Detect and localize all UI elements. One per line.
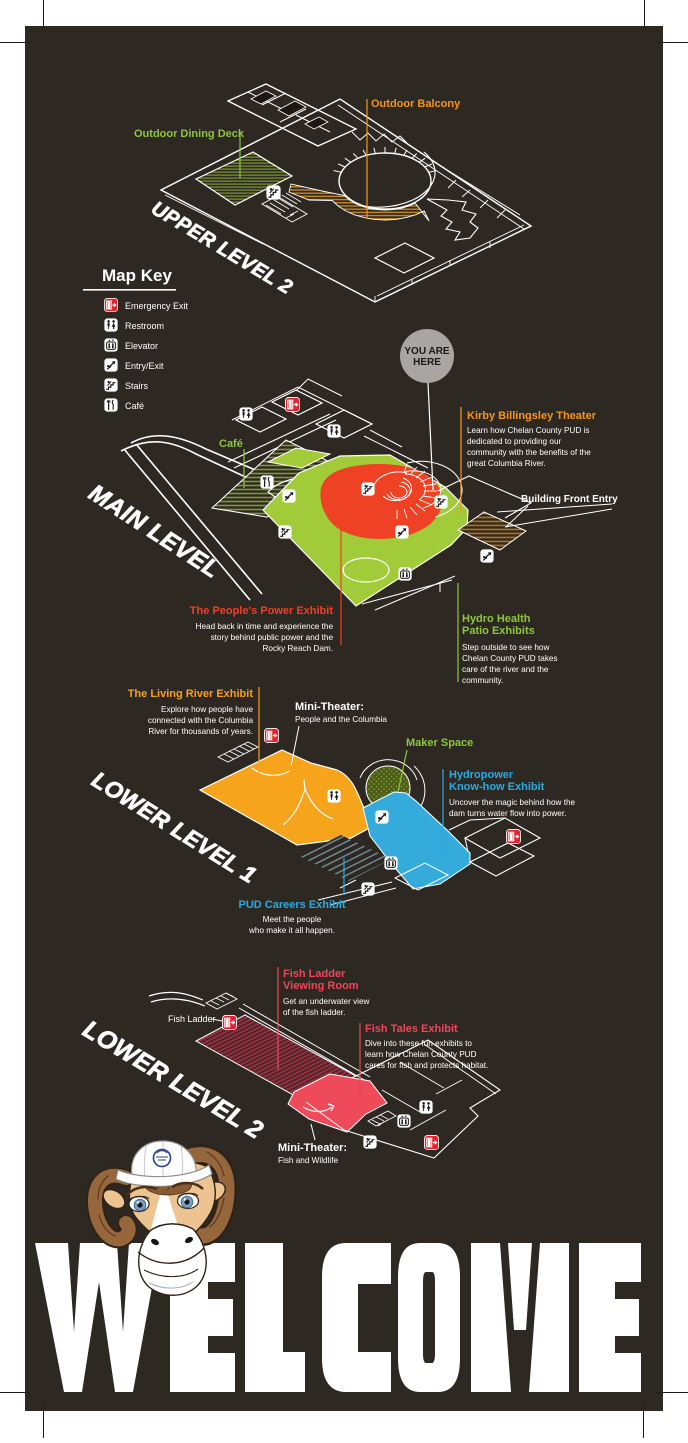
- svg-text:Uncover the magic behind how t: Uncover the magic behind how the: [449, 798, 576, 807]
- svg-text:PUD Careers Exhibit: PUD Careers Exhibit: [239, 899, 346, 911]
- svg-text:Rocky Reach Dam.: Rocky Reach Dam.: [262, 644, 333, 653]
- svg-text:Hydro Health: Hydro Health: [462, 613, 531, 625]
- svg-text:Map Key: Map Key: [102, 266, 172, 285]
- svg-text:Viewing Room: Viewing Room: [283, 980, 359, 992]
- svg-text:connected with the Columbia: connected with the Columbia: [148, 716, 254, 725]
- svg-text:The Living River Exhibit: The Living River Exhibit: [128, 688, 254, 700]
- svg-text:Kirby Billingsley Theater: Kirby Billingsley Theater: [467, 410, 597, 422]
- svg-text:Mini-Theater:: Mini-Theater:: [295, 701, 364, 713]
- svg-text:Fish Tales Exhibit: Fish Tales Exhibit: [365, 1023, 458, 1035]
- svg-text:Get an underwater view: Get an underwater view: [283, 997, 370, 1006]
- svg-text:Mini-Theater:: Mini-Theater:: [278, 1142, 347, 1154]
- svg-text:Restroom: Restroom: [125, 321, 164, 331]
- svg-text:community with the benefits of: community with the benefits of the: [467, 448, 591, 457]
- svg-text:great Columbia River.: great Columbia River.: [467, 459, 546, 468]
- svg-text:HERE: HERE: [413, 357, 441, 368]
- svg-text:River for thousands of years.: River for thousands of years.: [148, 727, 253, 736]
- svg-text:Building Front Entry: Building Front Entry: [521, 494, 618, 505]
- svg-text:dedicated to providing our: dedicated to providing our: [467, 437, 561, 446]
- svg-text:Fish Ladder: Fish Ladder: [168, 1014, 216, 1024]
- svg-text:Hydropower: Hydropower: [449, 769, 514, 781]
- svg-text:care of the river and the: care of the river and the: [462, 665, 549, 674]
- svg-text:Meet the people: Meet the people: [263, 915, 322, 924]
- svg-text:dam turns water flow into powe: dam turns water flow into power.: [449, 809, 566, 818]
- svg-text:Café: Café: [125, 401, 144, 411]
- svg-text:Outdoor Dining Deck: Outdoor Dining Deck: [134, 128, 245, 140]
- svg-text:Emergency Exit: Emergency Exit: [125, 301, 189, 311]
- svg-text:who make it all happen.: who make it all happen.: [248, 926, 335, 935]
- svg-text:Fish and Wildlife: Fish and Wildlife: [278, 1156, 339, 1165]
- svg-text:learn how Chelan County PUD: learn how Chelan County PUD: [365, 1050, 477, 1059]
- svg-text:of the fish ladder.: of the fish ladder.: [283, 1008, 345, 1017]
- svg-text:cares for fish and protects ha: cares for fish and protects habitat.: [365, 1061, 488, 1070]
- svg-text:Fish Ladder: Fish Ladder: [283, 968, 346, 980]
- svg-text:Maker Space: Maker Space: [406, 737, 473, 749]
- svg-text:Elevator: Elevator: [125, 341, 158, 351]
- svg-text:YOU ARE: YOU ARE: [404, 346, 450, 357]
- svg-text:Dive into these fun exhibits t: Dive into these fun exhibits to: [365, 1039, 472, 1048]
- svg-text:Café: Café: [219, 438, 243, 450]
- svg-text:Step outside to see how: Step outside to see how: [462, 643, 549, 652]
- svg-text:Patio Exhibits: Patio Exhibits: [462, 625, 535, 637]
- svg-text:Chelan County PUD takes: Chelan County PUD takes: [462, 654, 558, 663]
- svg-text:Learn how Chelan County PUD is: Learn how Chelan County PUD is: [467, 426, 589, 435]
- svg-text:The People's Power Exhibit: The People's Power Exhibit: [190, 605, 334, 617]
- svg-text:Stairs: Stairs: [125, 381, 149, 391]
- svg-text:Explore how people have: Explore how people have: [161, 705, 253, 714]
- svg-text:Know-how Exhibit: Know-how Exhibit: [449, 781, 545, 793]
- svg-text:story behind public power and: story behind public power and the: [211, 633, 334, 642]
- svg-text:community.: community.: [462, 676, 503, 685]
- svg-text:Head back in time and experien: Head back in time and experience the: [196, 622, 334, 631]
- svg-text:Entry/Exit: Entry/Exit: [125, 361, 164, 371]
- svg-text:People and the Columbia: People and the Columbia: [295, 715, 387, 724]
- svg-text:Outdoor Balcony: Outdoor Balcony: [371, 98, 461, 110]
